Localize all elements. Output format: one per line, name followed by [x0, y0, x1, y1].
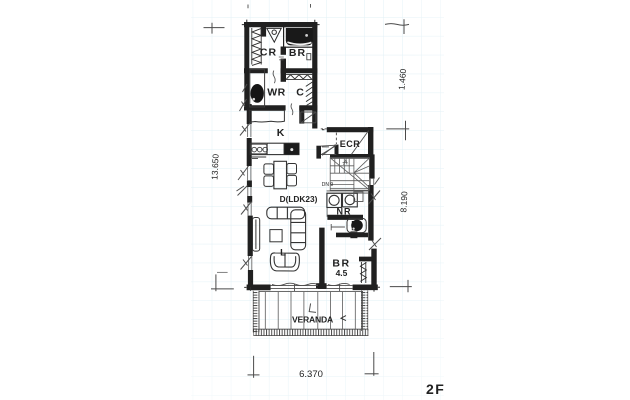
- svg-text:ECR: ECR: [340, 139, 361, 149]
- svg-text:13.650: 13.650: [209, 153, 220, 180]
- svg-text:1.460: 1.460: [396, 68, 408, 90]
- svg-text:K: K: [277, 127, 285, 139]
- svg-text:8.190: 8.190: [398, 191, 409, 213]
- svg-text:L: L: [280, 247, 286, 258]
- svg-text:4.5: 4.5: [336, 268, 348, 278]
- svg-text:DN 9: DN 9: [322, 182, 334, 188]
- svg-text:VERANDA: VERANDA: [292, 314, 333, 324]
- svg-text:CR: CR: [260, 46, 277, 58]
- svg-text:C: C: [296, 86, 304, 98]
- svg-text:D(LDK23): D(LDK23): [280, 194, 318, 204]
- svg-text:6.370: 6.370: [299, 369, 323, 380]
- svg-text:WR: WR: [267, 86, 286, 98]
- svg-text:NR: NR: [337, 206, 352, 216]
- svg-text:2F: 2F: [426, 381, 445, 397]
- svg-text:BR: BR: [289, 47, 306, 59]
